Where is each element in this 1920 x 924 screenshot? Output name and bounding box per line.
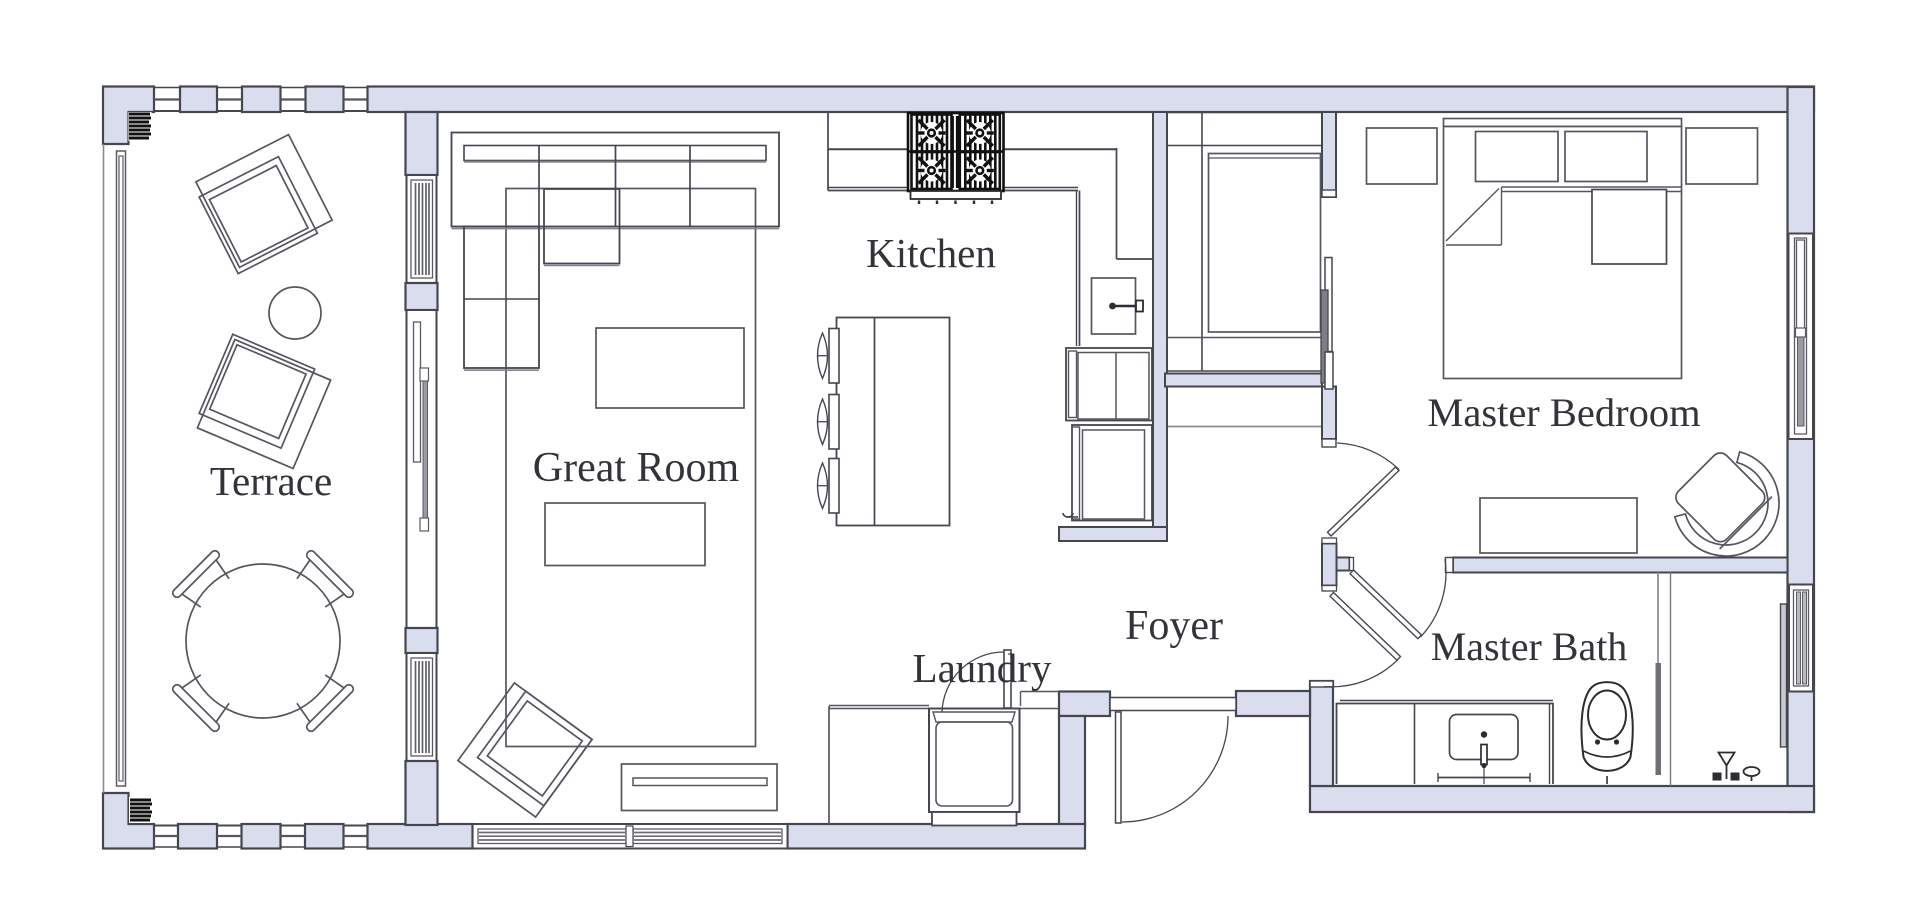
svg-text:Laundry: Laundry: [913, 645, 1052, 691]
svg-text:Terrace: Terrace: [210, 458, 332, 504]
svg-text:Master Bedroom: Master Bedroom: [1427, 390, 1700, 435]
svg-text:Kitchen: Kitchen: [866, 230, 996, 276]
svg-text:Great Room: Great Room: [533, 445, 740, 491]
svg-text:Foyer: Foyer: [1125, 603, 1223, 649]
svg-text:Master Bath: Master Bath: [1431, 624, 1628, 669]
